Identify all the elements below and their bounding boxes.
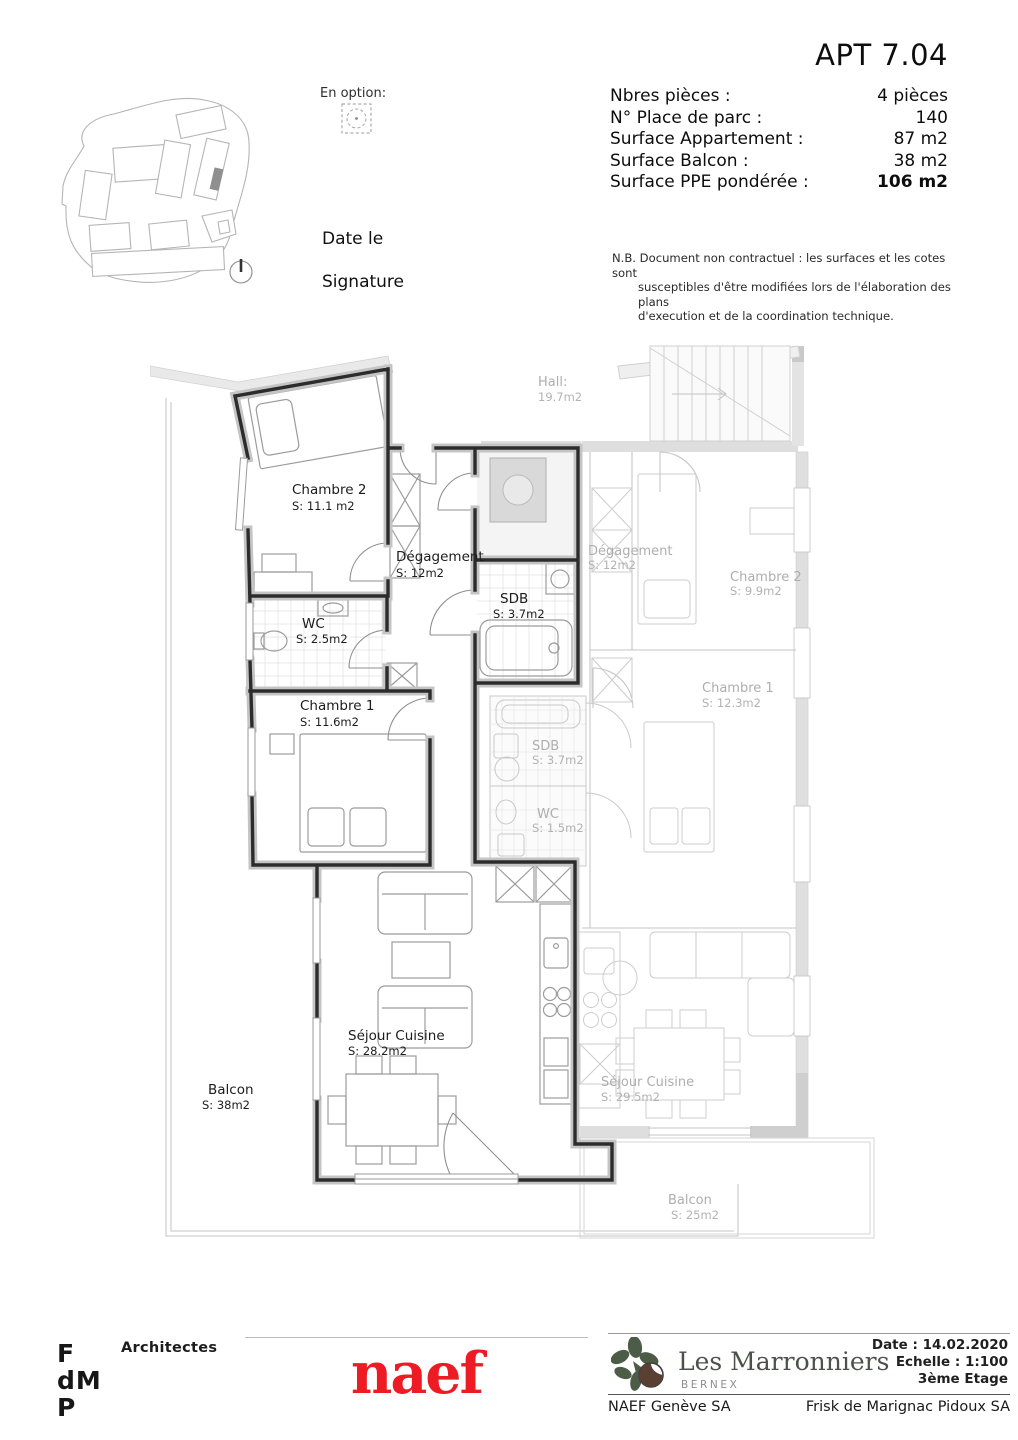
degagement-area: S: 12m2 — [396, 566, 444, 580]
info-row-surface-ppe: Surface PPE pondérée : 106 m2 — [610, 172, 948, 194]
stairs — [618, 346, 800, 441]
info-label: Nbres pièces : — [610, 86, 731, 108]
n-chambre1-area: S: 12.3m2 — [702, 696, 761, 710]
plan-scale: Echelle : 1:100 — [760, 1354, 1008, 1371]
info-label: Surface Appartement : — [610, 129, 804, 151]
info-label: N° Place de parc : — [610, 108, 762, 130]
info-value: 38 m2 — [894, 151, 948, 173]
bathtub — [480, 620, 572, 676]
fdmp-line: P — [57, 1394, 102, 1421]
chambre1-area: S: 11.6m2 — [300, 715, 359, 729]
hall-label: Hall: — [538, 375, 567, 390]
floor-plan: Hall: 19.7m2 Chambre 2 S: 11.1 m2 Dégage… — [150, 338, 880, 1260]
option-symbol-icon — [341, 103, 372, 134]
coffee-table — [392, 942, 450, 978]
info-row-pieces: Nbres pièces : 4 pièces — [610, 86, 948, 108]
disclaimer-line: susceptibles d'être modifiées lors de l'… — [638, 280, 962, 309]
info-label: Surface Balcon : — [610, 151, 749, 173]
sejour-label: Séjour Cuisine — [348, 1028, 445, 1044]
n-sejour-label: Séjour Cuisine — [601, 1075, 694, 1090]
bed-chambre1 — [270, 734, 426, 852]
sdb-sink — [546, 564, 574, 594]
n-sdb-label: SDB — [532, 739, 559, 754]
company-right: Frisk de Marignac Pidoux SA — [806, 1399, 1010, 1415]
sofas — [378, 872, 472, 1048]
option-label: En option: — [320, 86, 386, 101]
chambre2-area: S: 11.1 m2 — [292, 499, 355, 513]
site-location-map — [52, 84, 268, 296]
n-chambre2-area: S: 9.9m2 — [730, 584, 782, 598]
disclaimer-line: d'execution et de la coordination techni… — [638, 309, 962, 324]
plan-sheet-page: En option: Date le Signature APT 7.04 Nb… — [0, 0, 1018, 1440]
n-degagement-area: S: 12m2 — [588, 558, 636, 572]
info-label: Surface PPE pondérée : — [610, 172, 809, 194]
info-row-surface-apt: Surface Appartement : 87 m2 — [610, 129, 948, 151]
date-label: Date le — [322, 229, 383, 249]
apartment-info-table: Nbres pièces : 4 pièces N° Place de parc… — [610, 86, 948, 194]
n-sejour-area: S: 29.5m2 — [601, 1090, 660, 1104]
info-value: 140 — [916, 108, 948, 130]
n-degagement-label: Dégagement — [588, 544, 672, 559]
fdmp-line: F — [57, 1340, 102, 1367]
n-wc-label: WC — [537, 807, 559, 822]
project-location: BERNEX — [681, 1379, 739, 1391]
dining-table — [328, 1056, 456, 1164]
chambre2-label: Chambre 2 — [292, 482, 366, 498]
wc-area: S: 2.5m2 — [296, 632, 348, 646]
disclaimer-line: N.B. Document non contractuel : les surf… — [612, 251, 962, 280]
company-left: NAEF Genève SA — [608, 1399, 731, 1415]
plan-floor: 3ème Etage — [760, 1371, 1008, 1388]
architects-label: Architectes — [121, 1340, 217, 1356]
n-balcon-area: S: 25m2 — [671, 1208, 719, 1222]
sejour-area: S: 28.2m2 — [348, 1044, 407, 1058]
n-wc-area: S: 1.5m2 — [532, 821, 584, 835]
titleblock-divider-mid — [608, 1394, 1010, 1395]
titleblock-companies: NAEF Genève SA Frisk de Marignac Pidoux … — [608, 1399, 1010, 1415]
fdmp-line: dM — [57, 1367, 102, 1394]
degagement-label: Dégagement — [396, 549, 484, 565]
balcon-label: Balcon — [208, 1082, 254, 1098]
info-value: 106 m2 — [877, 172, 948, 194]
titleblock-divider-top — [608, 1333, 1010, 1334]
naef-divider — [245, 1337, 588, 1338]
info-value: 87 m2 — [894, 129, 948, 151]
titleblock-meta: Date : 14.02.2020 Echelle : 1:100 3ème E… — [760, 1337, 1008, 1387]
info-row-surface-balcon: Surface Balcon : 38 m2 — [610, 151, 948, 173]
balcon-area: S: 38m2 — [202, 1098, 250, 1112]
naef-logo: naef — [245, 1344, 588, 1404]
n-sdb-area: S: 3.7m2 — [532, 753, 584, 767]
north-indicator-icon — [230, 259, 252, 283]
n-balcon-label: Balcon — [668, 1193, 712, 1208]
dresser — [262, 554, 296, 572]
sdb-label: SDB — [500, 591, 528, 607]
n-chambre1-label: Chambre 1 — [702, 681, 774, 696]
plan-date: Date : 14.02.2020 — [760, 1337, 1008, 1354]
n-chambre2-label: Chambre 2 — [730, 570, 802, 585]
sdb-area: S: 3.7m2 — [493, 607, 545, 621]
apartment-title: APT 7.04 — [608, 38, 948, 72]
info-value: 4 pièces — [877, 86, 948, 108]
chambre1-label: Chambre 1 — [300, 698, 374, 714]
wc-label: WC — [302, 616, 325, 632]
marronniers-leaf-icon — [611, 1337, 671, 1393]
info-row-parking: N° Place de parc : 140 — [610, 108, 948, 130]
site-buildings — [79, 105, 236, 276]
disclaimer-note: N.B. Document non contractuel : les surf… — [612, 251, 962, 324]
fdmp-architects-logo: F dM P — [57, 1340, 102, 1421]
hall-area: 19.7m2 — [538, 390, 582, 404]
kitchen — [496, 866, 572, 1104]
signature-label: Signature — [322, 272, 404, 292]
